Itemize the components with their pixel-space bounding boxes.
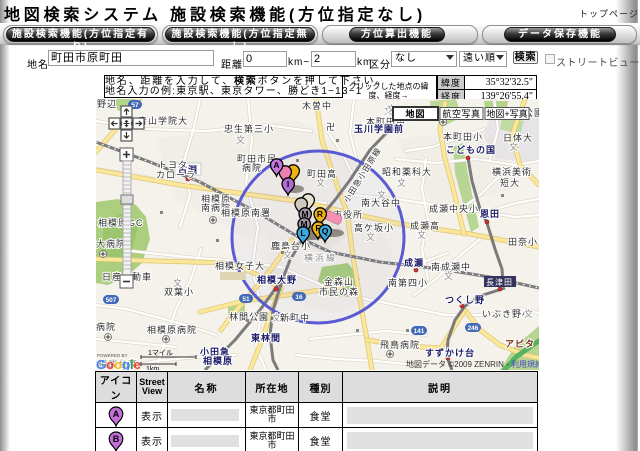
svg-text:つくし野: つくし野 [445,295,485,305]
svg-text:トヨタ: トヨタ [158,160,188,170]
svg-text:文: 文 [444,270,454,281]
svg-text:A: A [113,409,120,419]
svg-text:田奈小: 田奈小 [508,236,538,247]
svg-text:文: 文 [524,308,534,319]
svg-text:玉川学園前: 玉川学園前 [354,123,404,134]
svg-text:成瀬中央小: 成瀬中央小 [429,203,479,214]
svg-text:東林間: 東林間 [251,332,281,343]
svg-text:文: 文 [366,231,376,242]
svg-text:文: 文 [417,229,427,240]
svg-text:文: 文 [509,141,519,152]
svg-text:成瀬: 成瀬 [404,257,424,268]
svg-text:Q: Q [322,226,329,236]
svg-text:16: 16 [295,294,303,301]
svg-text:R: R [317,209,323,219]
svg-text:航空写真: 航空写真 [442,108,480,119]
svg-text:相模原: 相模原 [203,355,233,366]
svg-text:カローラ: カローラ [156,170,196,180]
svg-text:文: 文 [173,277,183,288]
svg-text:文: 文 [377,189,387,200]
svg-text:新町中: 新町中 [280,312,310,323]
svg-text:A: A [273,160,279,170]
svg-text:飛鳥病院: 飛鳥病院 [380,339,420,350]
svg-text:短大: 短大 [500,177,520,188]
svg-text:アピタ: アピタ [505,338,535,349]
svg-text:横浜美術: 横浜美術 [492,166,532,177]
svg-text:507: 507 [106,297,117,304]
svg-text:市民の森: 市民の森 [319,286,359,297]
svg-text:本町田小: 本町田小 [443,131,483,142]
svg-text:林間公園: 林間公園 [229,311,269,322]
svg-text:こどもの国: こどもの国 [446,144,496,155]
svg-text:地図データ ©2009 ZENRIN - 利用規約: 地図データ ©2009 ZENRIN - 利用規約 [406,359,539,369]
svg-text:L: L [300,228,305,238]
svg-text:1km: 1km [146,366,159,370]
svg-text:地図: 地図 [405,108,425,119]
svg-text:すずかけ台: すずかけ台 [425,347,475,358]
svg-text:木曽中: 木曽中 [302,100,332,111]
svg-text:横浜線: 横浜線 [304,252,337,263]
svg-text:文: 文 [236,134,246,145]
svg-text:51: 51 [242,296,250,303]
svg-text:B: B [113,434,120,444]
svg-text:相模大野: 相模大野 [257,274,297,285]
svg-text:Google: Google [96,357,141,370]
svg-text:相模原南署: 相模原南署 [221,207,271,218]
svg-text:相模女子大: 相模女子大 [215,260,265,271]
svg-text:長津田: 長津田 [486,277,513,287]
svg-text:忠生第三小: 忠生第三小 [224,123,274,134]
svg-text:卍: 卍 [326,122,336,132]
svg-text:金森山: 金森山 [324,276,354,287]
svg-text:246: 246 [468,325,479,332]
svg-text:文: 文 [283,249,293,260]
svg-text:141: 141 [414,328,425,335]
svg-text:相模原病院: 相模原病院 [147,324,197,335]
svg-text:恩田: 恩田 [479,209,500,219]
svg-text:大病院: 大病院 [96,238,126,249]
svg-text:昭和薬科大: 昭和薬科大 [382,166,432,177]
svg-text:野辺: 野辺 [97,99,117,109]
svg-text:青山学院大: 青山学院大 [138,115,188,126]
svg-text:1マイル: 1マイル [148,349,173,357]
svg-text:I: I [287,179,289,189]
svg-text:南第四小: 南第四小 [388,277,428,288]
svg-text:文: 文 [397,177,407,188]
svg-text:文: 文 [316,177,326,188]
svg-text:病院: 病院 [242,163,262,173]
svg-text:相模原GC: 相模原GC [98,217,144,228]
svg-text:地図+写真: 地図+写真 [486,108,527,119]
svg-text:病院: 病院 [96,322,116,332]
